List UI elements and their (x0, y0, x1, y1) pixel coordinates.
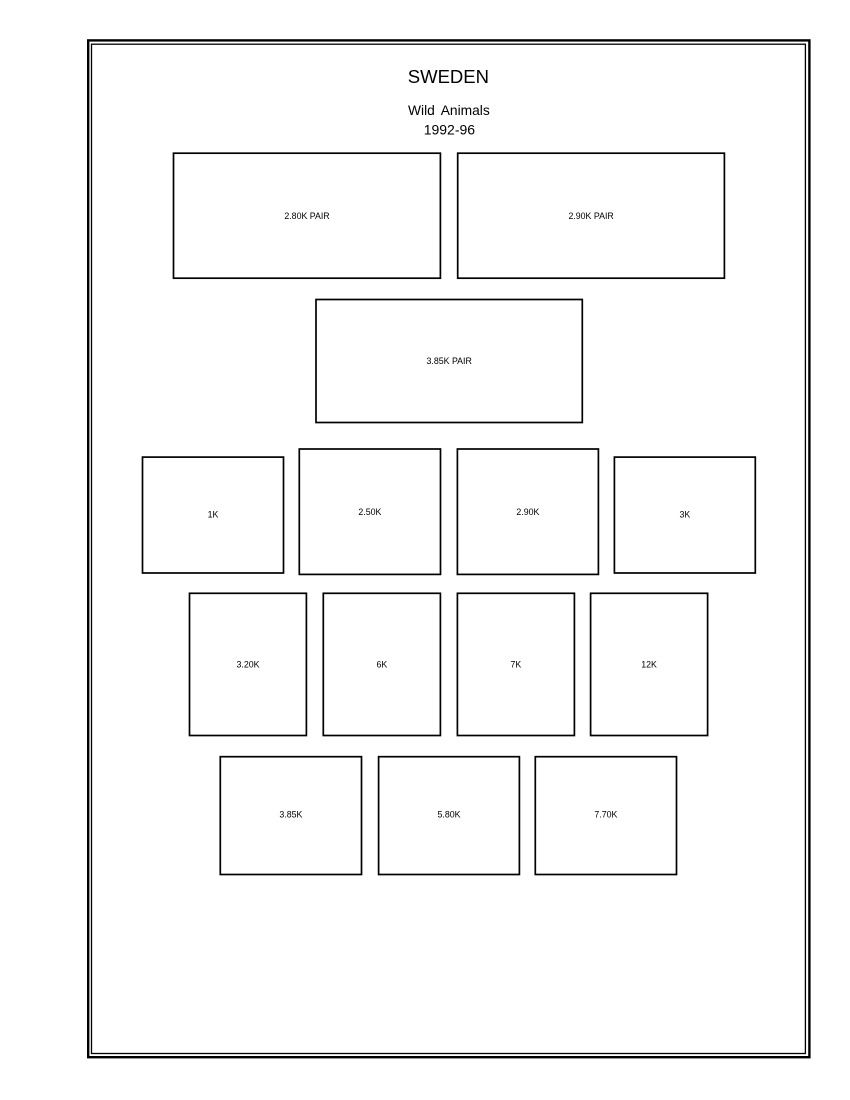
svg-text:SWEDEN: SWEDEN (408, 66, 489, 87)
svg-text:1K: 1K (208, 510, 219, 520)
svg-text:1992-96: 1992-96 (424, 122, 476, 138)
svg-text:3.85K PAIR: 3.85K PAIR (427, 356, 472, 366)
svg-text:3.20K: 3.20K (237, 660, 260, 670)
svg-text:2.90K: 2.90K (516, 507, 539, 517)
svg-text:2.50K: 2.50K (358, 507, 381, 517)
svg-text:3K: 3K (680, 510, 691, 520)
svg-text:5.80K: 5.80K (438, 809, 461, 819)
svg-text:2.80K PAIR: 2.80K PAIR (284, 211, 329, 221)
svg-text:7.70K: 7.70K (594, 809, 617, 819)
svg-text:3.85K: 3.85K (279, 809, 302, 819)
svg-text:Wild Animals: Wild Animals (408, 103, 490, 118)
svg-text:2.90K PAIR: 2.90K PAIR (568, 211, 613, 221)
svg-text:6K: 6K (377, 660, 388, 670)
svg-text:7K: 7K (511, 660, 522, 670)
svg-text:12K: 12K (641, 660, 657, 670)
